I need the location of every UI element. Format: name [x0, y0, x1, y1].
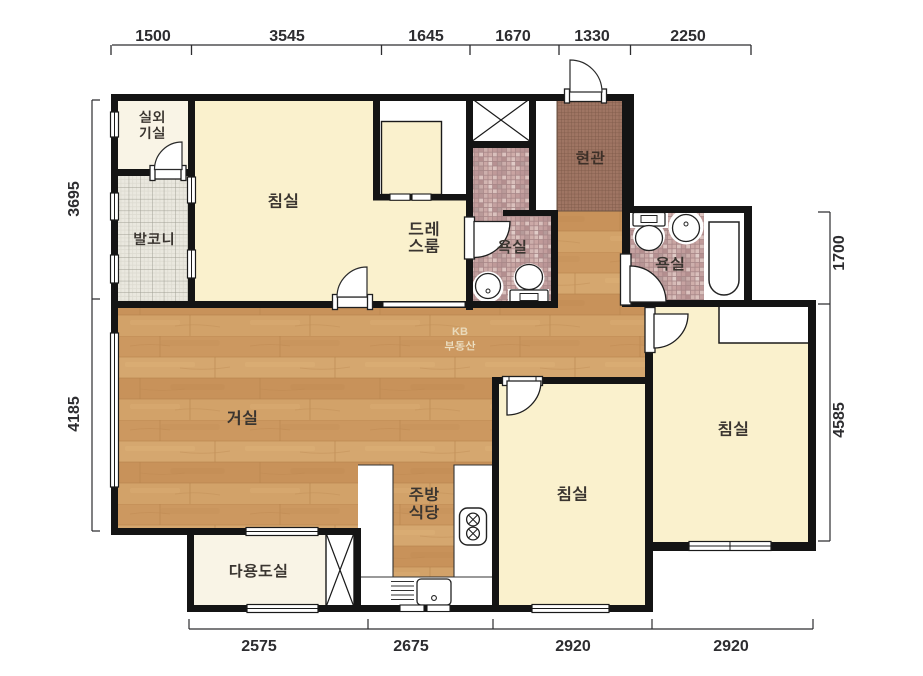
svg-text:3545: 3545 [269, 28, 305, 45]
svg-text:KB: KB [452, 326, 468, 338]
svg-text:1500: 1500 [135, 28, 171, 45]
svg-text:1670: 1670 [495, 28, 531, 45]
svg-text:2575: 2575 [241, 638, 277, 655]
svg-text:2675: 2675 [393, 638, 429, 655]
svg-text:1700: 1700 [831, 235, 848, 271]
svg-text:1330: 1330 [574, 28, 610, 45]
svg-text:2920: 2920 [555, 638, 591, 655]
svg-text:1645: 1645 [408, 28, 444, 45]
svg-text:2920: 2920 [713, 638, 749, 655]
svg-text:4585: 4585 [831, 402, 848, 438]
svg-text:3695: 3695 [66, 181, 83, 217]
svg-text:2250: 2250 [670, 28, 706, 45]
svg-text:4185: 4185 [66, 396, 83, 432]
